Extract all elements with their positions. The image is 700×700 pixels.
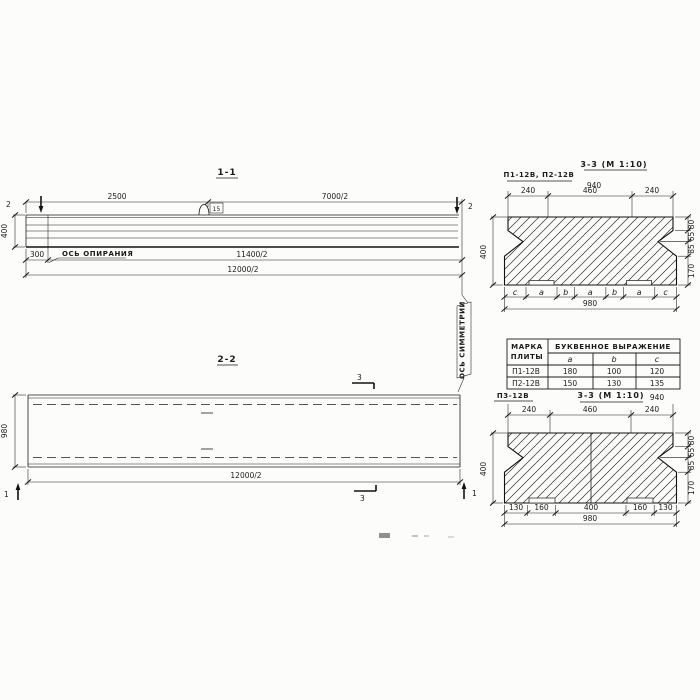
letter-a-2: a [588,288,593,297]
dimensions-table: МАРКА ПЛИТЫ БУКВЕННОЕ ВЫРАЖЕНИЕ a b c П1… [507,339,680,389]
dim-160-left: 160 [534,503,549,512]
cut-1-left-label: 1 [4,490,9,499]
letter-b-1: b [563,288,568,297]
cut-3-top-label: 3 [357,373,362,382]
cut-marker-2-left: 2 [6,196,43,213]
dim-240-right-bottom: 240 [645,405,660,414]
cut-marker-2-right: 2 [455,197,473,214]
letter-c-1: c [513,288,518,297]
cut-1-right-label: 1 [472,489,477,498]
row1-c: 120 [650,367,665,376]
symmetry-axis-group: ОСЬ СИММЕТРИИ [457,199,471,392]
letter-a-3: a [637,288,642,297]
cut-3-bottom-label: 3 [360,494,365,503]
dim-right-65: 65 [687,448,696,458]
cut-marker-1-right: 1 [462,482,477,499]
plan-width-dimension [13,395,26,467]
dim-980-p3: 980 [583,514,598,523]
symmetry-axis-label: ОСЬ СИММЕТРИИ [459,301,467,379]
dim-right-170: 170 [687,481,696,496]
dim-7000-2: 7000/2 [322,192,349,201]
dim-right-85: 85 [687,244,696,254]
section-3-3-top-group: 3-3 (М 1:10) П1-12В, П2-12В 940 240 460 … [479,160,696,312]
table-header-mark-1: МАРКА [511,343,543,351]
table-row: П2-12В 150 130 135 [512,379,664,388]
dim-400-left: 400 [0,224,9,239]
dim-940-bottom: 940 [650,393,665,402]
section-2-2-group: 2-2 980 12000/2 [0,355,477,503]
variant-label-p1-p2: П1-12В, П2-12В [504,171,575,179]
cut-marker-1-left: 1 [4,483,20,500]
drawing-svg: 1-1 2500 7000/2 2 2 [0,0,700,700]
dim-400-p3: 400 [479,462,488,477]
bottom-groove-right [627,281,652,286]
row2-a: 150 [563,379,578,388]
table-col-b: b [611,355,616,364]
row1-mark: П1-12В [512,367,540,376]
section-1-1-title: 1-1 [217,168,236,178]
dim-right-85: 85 [687,461,696,471]
top-dimension-line [26,202,462,213]
variant-label-p3: П3-12В [497,392,529,400]
table-row: П1-12В 180 100 120 [512,367,664,376]
row2-b: 130 [607,379,622,388]
section-2-2-title: 2-2 [217,355,236,365]
dim-right-80: 80 [687,220,696,230]
dim-980-plan: 980 [0,424,9,439]
table-col-c: c [655,355,660,364]
dim-12000-2-plan: 12000/2 [230,471,261,480]
cross-section-p1-p2 [505,217,677,285]
dim-130-right: 130 [658,503,673,512]
section-3-3-bottom-title: 3-3 (М 1:10) [577,391,644,400]
letter-b-2: b [612,288,617,297]
dim-460-top: 460 [583,186,598,195]
section-3-3-top-title: 3-3 (М 1:10) [580,160,647,169]
bearing-axis-label: ОСЬ ОПИРАНИЯ [62,250,133,258]
cross-section-p3 [505,433,677,503]
slab-plan-outline [28,395,460,467]
cut-2-right-label: 2 [468,202,473,211]
dim-240-left-bottom: 240 [522,405,537,414]
table-header-mark-2: ПЛИТЫ [511,353,544,361]
row1-b: 100 [607,367,622,376]
dim-160-right: 160 [633,503,648,512]
cut-2-left-label: 2 [6,200,11,209]
dim-400-p1: 400 [479,245,488,260]
dim-460-bottom: 460 [583,405,598,414]
loop-tag-label: 15 [213,206,221,213]
dim-130-left: 130 [509,503,524,512]
dim-right-170: 170 [687,264,696,279]
section-3-3-bottom-group: П3-12В 3-3 (М 1:10) 940 240 460 240 400 [479,391,696,527]
dim-240-right-top: 240 [645,186,660,195]
dim-2500: 2500 [107,192,126,201]
dim-240-left-top: 240 [521,186,536,195]
cut-marker-3-bottom: 3 [354,485,376,503]
dim-980-p1: 980 [583,299,598,308]
table-col-a: a [568,355,573,364]
table-header-expression: БУКВЕННОЕ ВЫРАЖЕНИЕ [555,343,671,351]
dim-12000-2-top: 12000/2 [227,265,258,274]
row2-mark: П2-12В [512,379,540,388]
section-1-1-group: 1-1 2500 7000/2 2 2 [0,168,473,278]
blueprint-scan: 1-1 2500 7000/2 2 2 [0,0,700,700]
dim-right-65: 65 [687,232,696,242]
row1-a: 180 [563,367,578,376]
dim-300: 300 [30,250,45,259]
dim-right-80: 80 [687,436,696,446]
letter-a-1: a [539,288,544,297]
print-smudge [379,533,454,538]
height-dimension [13,215,25,247]
bottom-groove-left [529,281,554,286]
dim-400-bottom: 400 [584,503,599,512]
lifting-loop: 15 [199,203,223,215]
row2-c: 135 [650,379,665,388]
cut-marker-3-top: 3 [352,373,374,389]
dim-11400-2: 11400/2 [236,250,267,259]
letter-c-2: c [663,288,668,297]
